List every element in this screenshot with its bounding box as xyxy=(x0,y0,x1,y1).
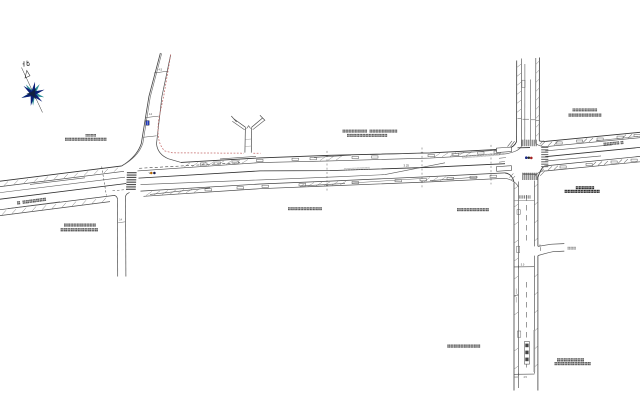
svg-text:5.0: 5.0 xyxy=(521,264,525,267)
svg-text:3.25: 3.25 xyxy=(404,163,410,167)
svg-text:4.5: 4.5 xyxy=(159,68,163,72)
